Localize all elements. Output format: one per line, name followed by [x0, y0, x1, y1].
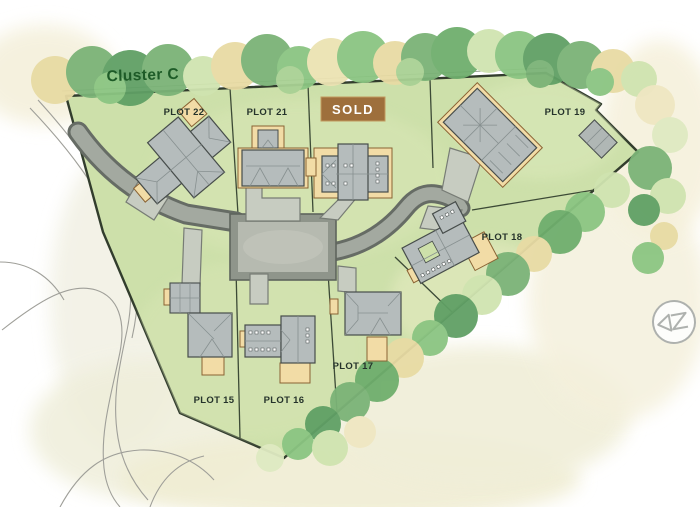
- tree-blob: [256, 444, 284, 472]
- driveway-plot-16: [250, 274, 268, 304]
- tree-blob: [526, 60, 554, 88]
- plot-label-19: PLOT 19: [545, 107, 586, 118]
- tree-blob: [344, 416, 376, 448]
- plot-label-15: PLOT 15: [194, 395, 235, 406]
- tree-blob: [312, 430, 348, 466]
- tree-blob: [586, 68, 614, 96]
- plot-label-17: PLOT 17: [333, 361, 374, 372]
- plot-label-22: PLOT 22: [164, 107, 205, 118]
- site-plan-svg: Cluster C PLOT 22 PLOT 21 PLOT 19 PLOT 1…: [0, 0, 700, 507]
- patio: [202, 357, 224, 375]
- tree-blob: [282, 428, 314, 460]
- patio: [306, 158, 316, 176]
- plot-label-16: PLOT 16: [264, 395, 305, 406]
- patio: [330, 299, 338, 314]
- tree-blob: [276, 66, 304, 94]
- cluster-title: Cluster C: [106, 66, 179, 86]
- roof: [345, 292, 401, 335]
- sold-badge: SOLD: [321, 97, 385, 121]
- tree-blob: [628, 194, 660, 226]
- tree-blob: [632, 242, 664, 274]
- plot-label-21: PLOT 21: [247, 107, 288, 118]
- driveway-plot-17: [338, 266, 356, 293]
- sold-badge-label: SOLD: [332, 102, 374, 117]
- driveway-plot-15: [182, 228, 202, 286]
- plot-label-18: PLOT 18: [482, 232, 523, 243]
- patio: [280, 363, 310, 383]
- site-plan-canvas: Cluster C PLOT 22 PLOT 21 PLOT 19 PLOT 1…: [0, 0, 700, 507]
- tree-blob: [396, 58, 424, 86]
- patio: [367, 337, 387, 361]
- courtyard-highlight: [243, 230, 323, 264]
- roof: [258, 130, 278, 148]
- sold-house: [306, 144, 392, 200]
